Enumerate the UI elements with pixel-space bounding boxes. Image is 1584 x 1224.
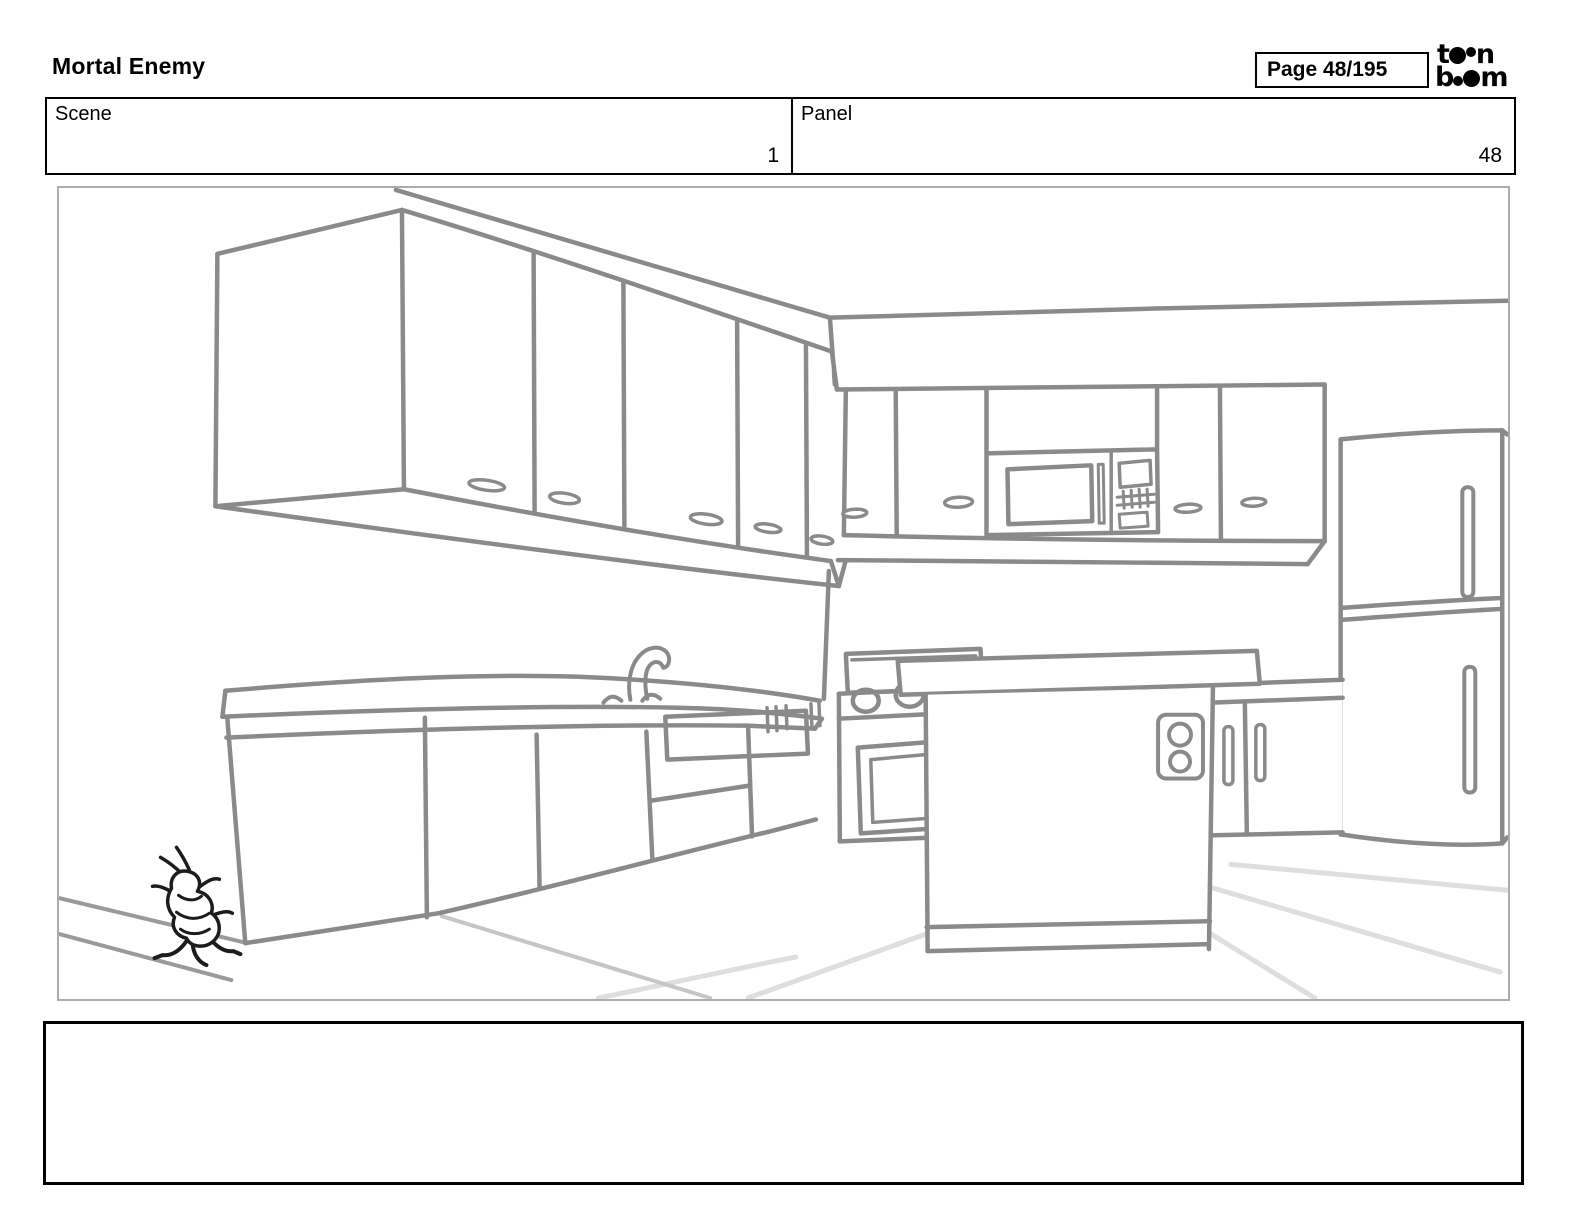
panel-cell: Panel 48 [793, 99, 1514, 173]
cockroach [153, 847, 241, 965]
refrigerator [1341, 430, 1508, 844]
kitchen-drawing [59, 188, 1508, 999]
cockroach-antenna [176, 847, 189, 870]
project-title: Mortal Enemy [52, 53, 205, 80]
panel-value: 48 [1479, 144, 1506, 168]
fridge-handle-bottom [1464, 667, 1475, 793]
page-number-box: Page 48/195 [1255, 52, 1429, 88]
scene-panel-table: Scene 1 Panel 48 [45, 97, 1516, 175]
page-number-label: Page 48/195 [1267, 58, 1387, 82]
left-counter [222, 648, 824, 943]
microwave [986, 449, 1158, 535]
kitchen-island [898, 651, 1260, 951]
scene-label: Scene [55, 103, 783, 126]
toonboom-logo: tn bm [1437, 42, 1521, 98]
floor-seam-line [442, 916, 710, 998]
upper-left-cabinets [215, 210, 838, 586]
caption-box [43, 1021, 1524, 1185]
storyboard-panel [57, 186, 1510, 1001]
scene-cell: Scene 1 [47, 99, 793, 173]
fridge-handle-top [1462, 487, 1473, 597]
panel-label: Panel [801, 103, 1506, 126]
back-wall-cabinets [837, 385, 1325, 587]
scene-value: 1 [767, 144, 783, 168]
